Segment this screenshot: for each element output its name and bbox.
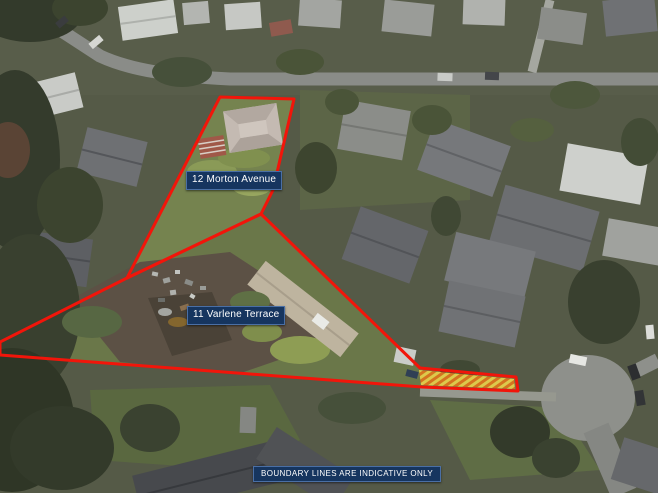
parcel-label-morton-avenue: 12 Morton Avenue: [186, 171, 282, 190]
morton-glasshouse: [198, 135, 227, 159]
property-boundary-map: 12 Morton Avenue 11 Varlene Terrace BOUN…: [0, 0, 658, 493]
aerial-photo: [0, 0, 658, 493]
disclaimer-banner: BOUNDARY LINES ARE INDICATIVE ONLY: [253, 466, 441, 482]
parcel-label-varlene-terrace: 11 Varlene Terrace: [187, 306, 285, 325]
morton-house: [223, 103, 283, 153]
